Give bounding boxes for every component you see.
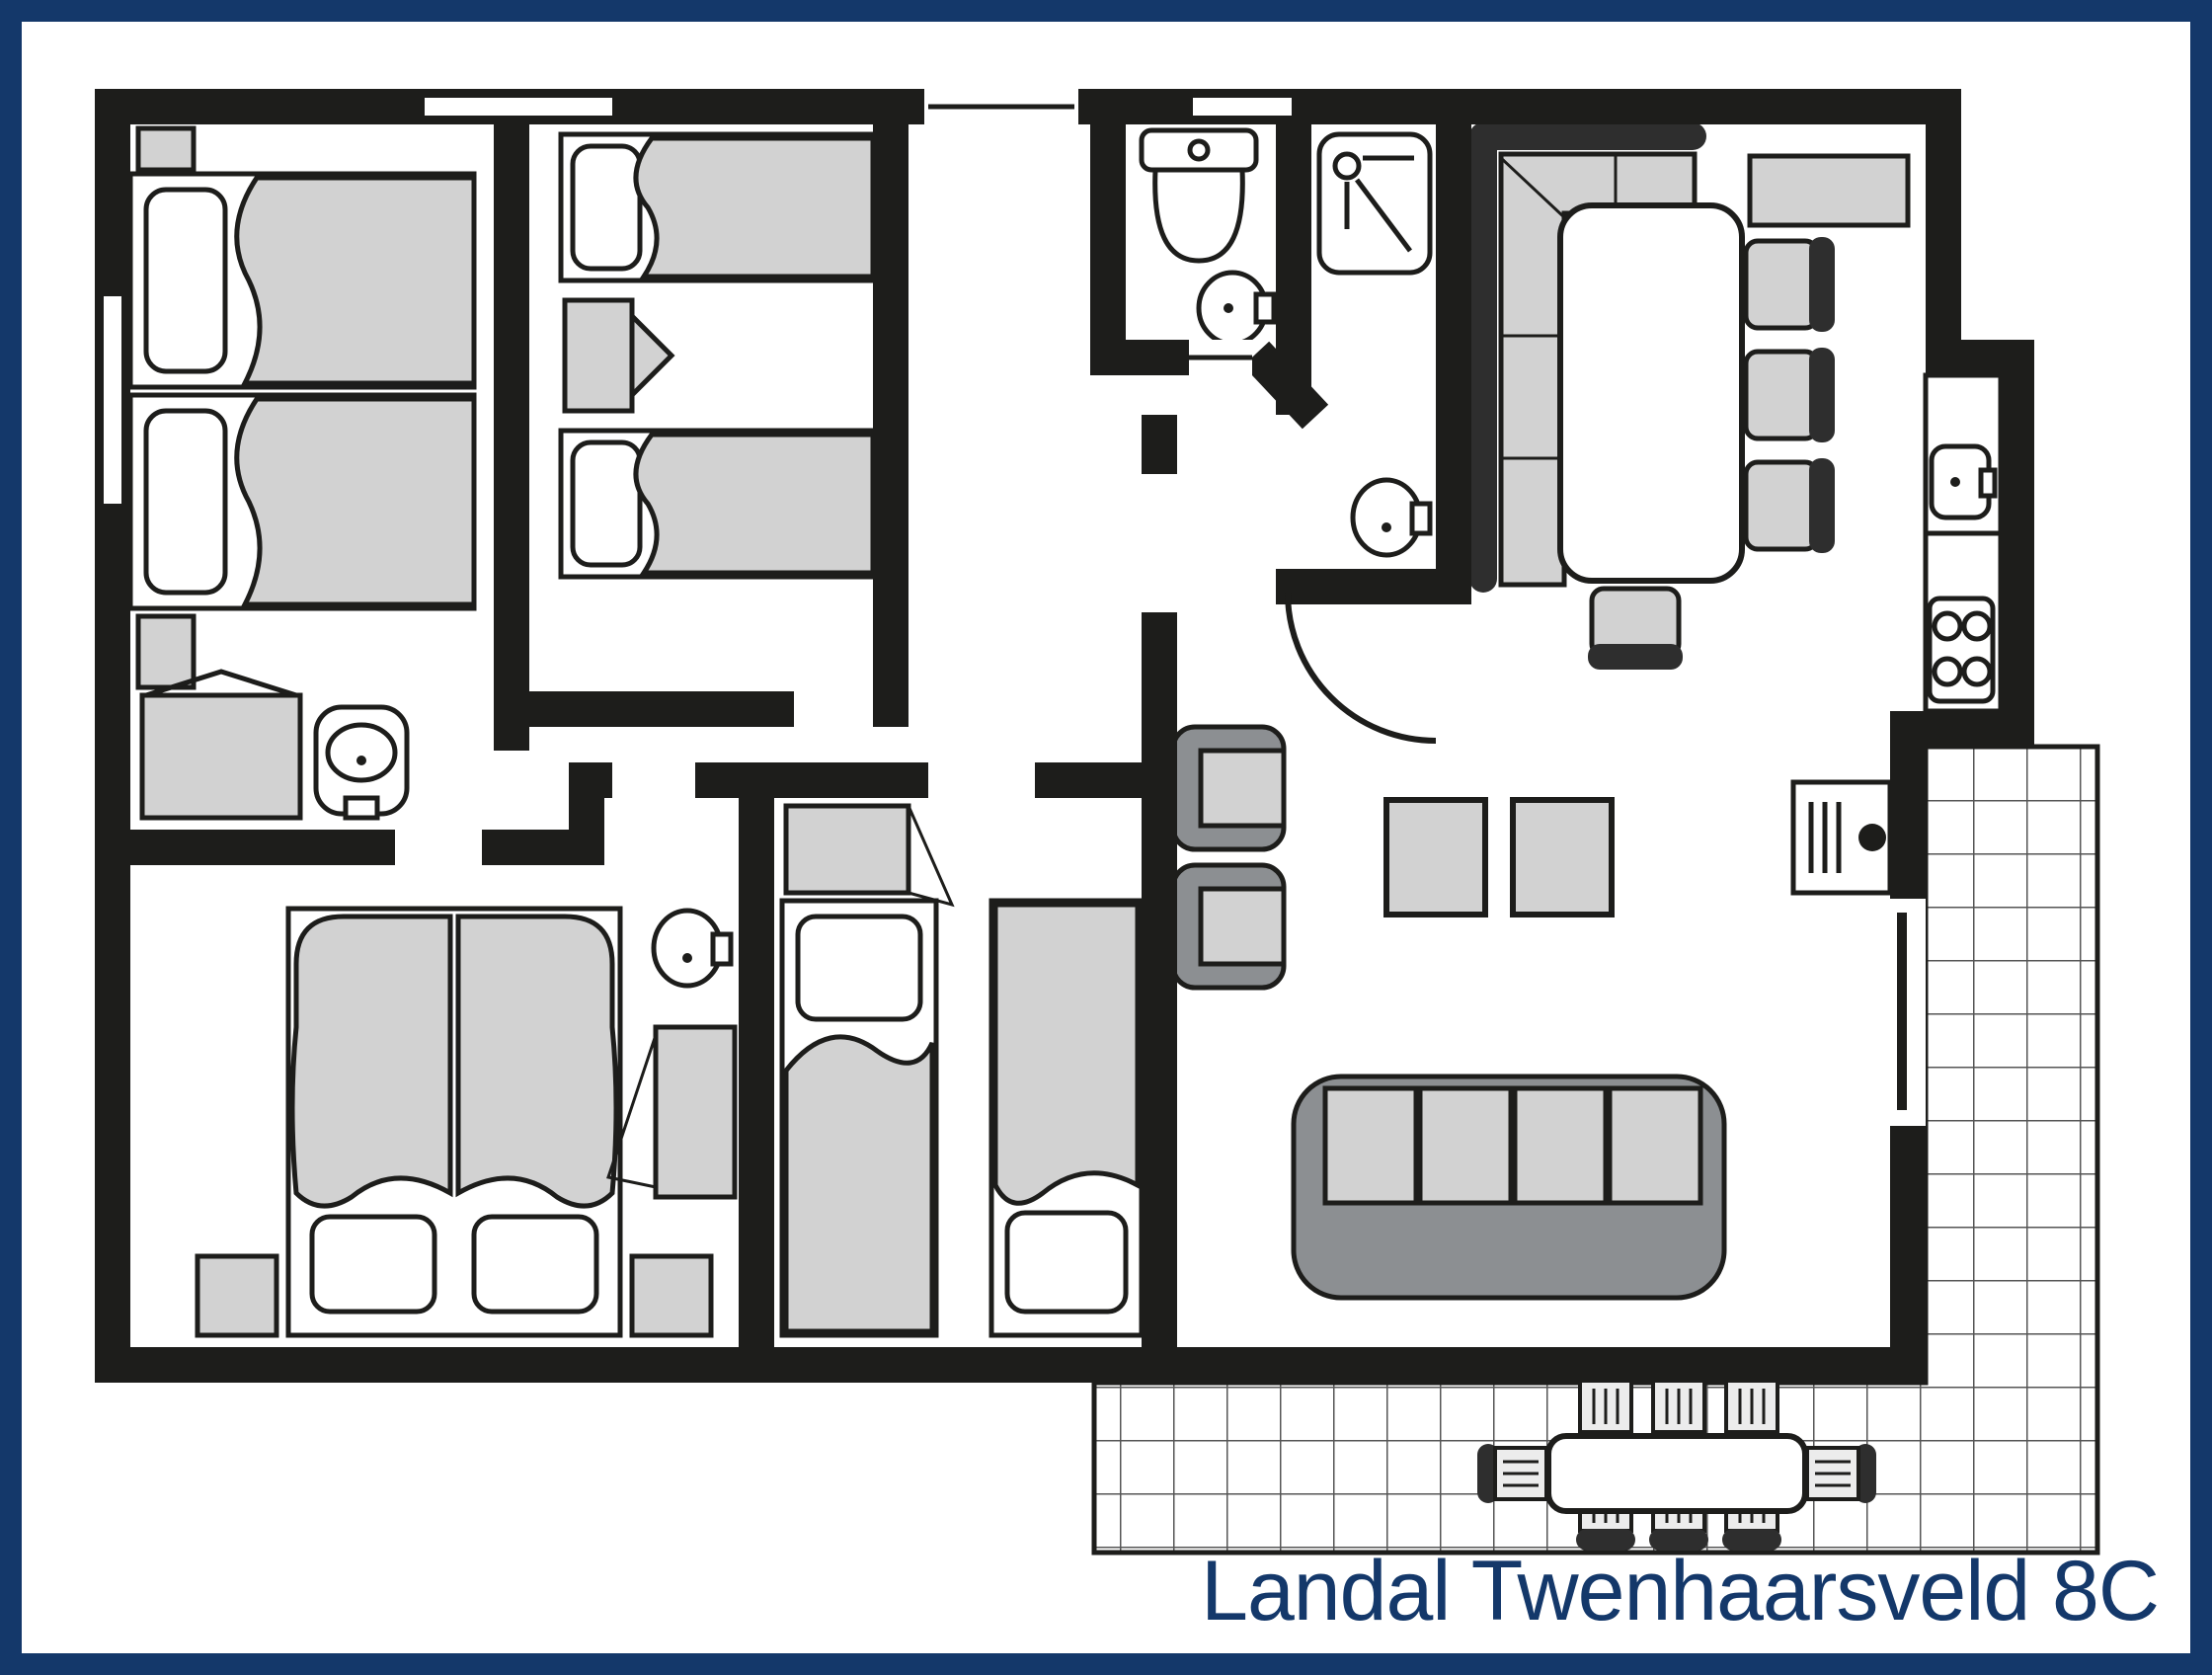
pillow [474, 1217, 596, 1312]
wall-bottom [95, 1347, 1926, 1383]
wall-left [95, 89, 130, 1383]
kitchen [1926, 375, 2001, 711]
window-left-wall [104, 296, 121, 504]
sofa-cushion [1610, 1088, 1700, 1203]
wardrobe [142, 672, 300, 818]
single-bed [782, 901, 936, 1335]
garden-table [1548, 1436, 1805, 1511]
stove-icon [1930, 598, 1993, 701]
terrace-sliding-door-panel [1897, 913, 1907, 1110]
blanket [636, 138, 873, 277]
dining-chair [1588, 589, 1683, 670]
sofa [1294, 1077, 1724, 1298]
door-bedroom-top-middle [794, 691, 873, 727]
kitchen-sink-icon [1932, 446, 1995, 518]
door-bedroom-top-left [395, 830, 482, 865]
wall-bed1-south [95, 830, 604, 865]
single-bed [561, 431, 873, 577]
pillow [146, 411, 225, 593]
dining-chair [1746, 237, 1835, 332]
floor-plan-drawing: Landal Twenhaarsveld 8C [0, 0, 2212, 1675]
pillow [1007, 1213, 1126, 1312]
door-bedroom-bottom-left [612, 762, 695, 798]
wall-step [569, 762, 604, 865]
wall-shower-east [1436, 124, 1471, 604]
wall-wc-shower [1276, 124, 1311, 415]
nightstand [138, 128, 194, 170]
garden-chair [1477, 1444, 1546, 1503]
pillow [146, 190, 225, 371]
wall-alcove-bottom [1890, 711, 2034, 747]
pillow [798, 917, 920, 1019]
single-bed [561, 134, 873, 280]
blanket [237, 399, 474, 604]
wall-alcove-right [1999, 340, 2034, 747]
nightstand [632, 1256, 711, 1335]
dining-chair [1746, 458, 1835, 553]
blanket [292, 917, 450, 1206]
floor-plan-page: Landal Twenhaarsveld 8C [0, 0, 2212, 1675]
blanket [636, 435, 873, 573]
wall-bed3-bedmid [739, 798, 774, 1347]
sofa-cushion [1420, 1088, 1511, 1203]
blanket [786, 1037, 932, 1331]
nightstand [197, 1256, 276, 1335]
armchair [1173, 727, 1284, 849]
sofa-cushion [1515, 1088, 1606, 1203]
washbasin [316, 707, 407, 818]
sofa-cushion [1325, 1088, 1416, 1203]
dining-table [1560, 205, 1742, 581]
wall-corridor-west [873, 124, 908, 727]
door-hall-living [1142, 474, 1177, 612]
pillow [312, 1217, 434, 1312]
window-top-shower [1193, 98, 1292, 116]
nightstand [138, 616, 194, 687]
dining-chair [1746, 348, 1835, 442]
wall-wc-west [1090, 124, 1126, 375]
single-bed [130, 395, 474, 608]
door-bedroom-bottom-middle [928, 762, 1035, 798]
pillow [573, 146, 640, 269]
single-bed [130, 174, 474, 387]
coffee-table [1386, 800, 1485, 915]
tv [1793, 782, 1890, 893]
wall-bed1-bed2 [494, 124, 529, 751]
terrace-sliding-door [1890, 899, 1926, 1126]
garden-chair [1807, 1444, 1876, 1503]
double-bed [288, 909, 620, 1335]
single-bed [991, 901, 1142, 1335]
coffee-table [1513, 800, 1612, 915]
sideboard [1750, 156, 1908, 225]
armchair [1173, 865, 1284, 988]
window-top-bedroom [425, 98, 612, 116]
shower-tray [1319, 134, 1430, 273]
wall-shower-south [1276, 569, 1471, 604]
pillow [573, 442, 640, 565]
plan-title: Landal Twenhaarsveld 8C [1201, 1544, 2159, 1638]
wall-wc-south [1090, 340, 1189, 375]
blanket [237, 178, 474, 383]
wall-right-upper [1926, 89, 1961, 375]
blanket [995, 905, 1138, 1203]
blanket [458, 917, 616, 1206]
